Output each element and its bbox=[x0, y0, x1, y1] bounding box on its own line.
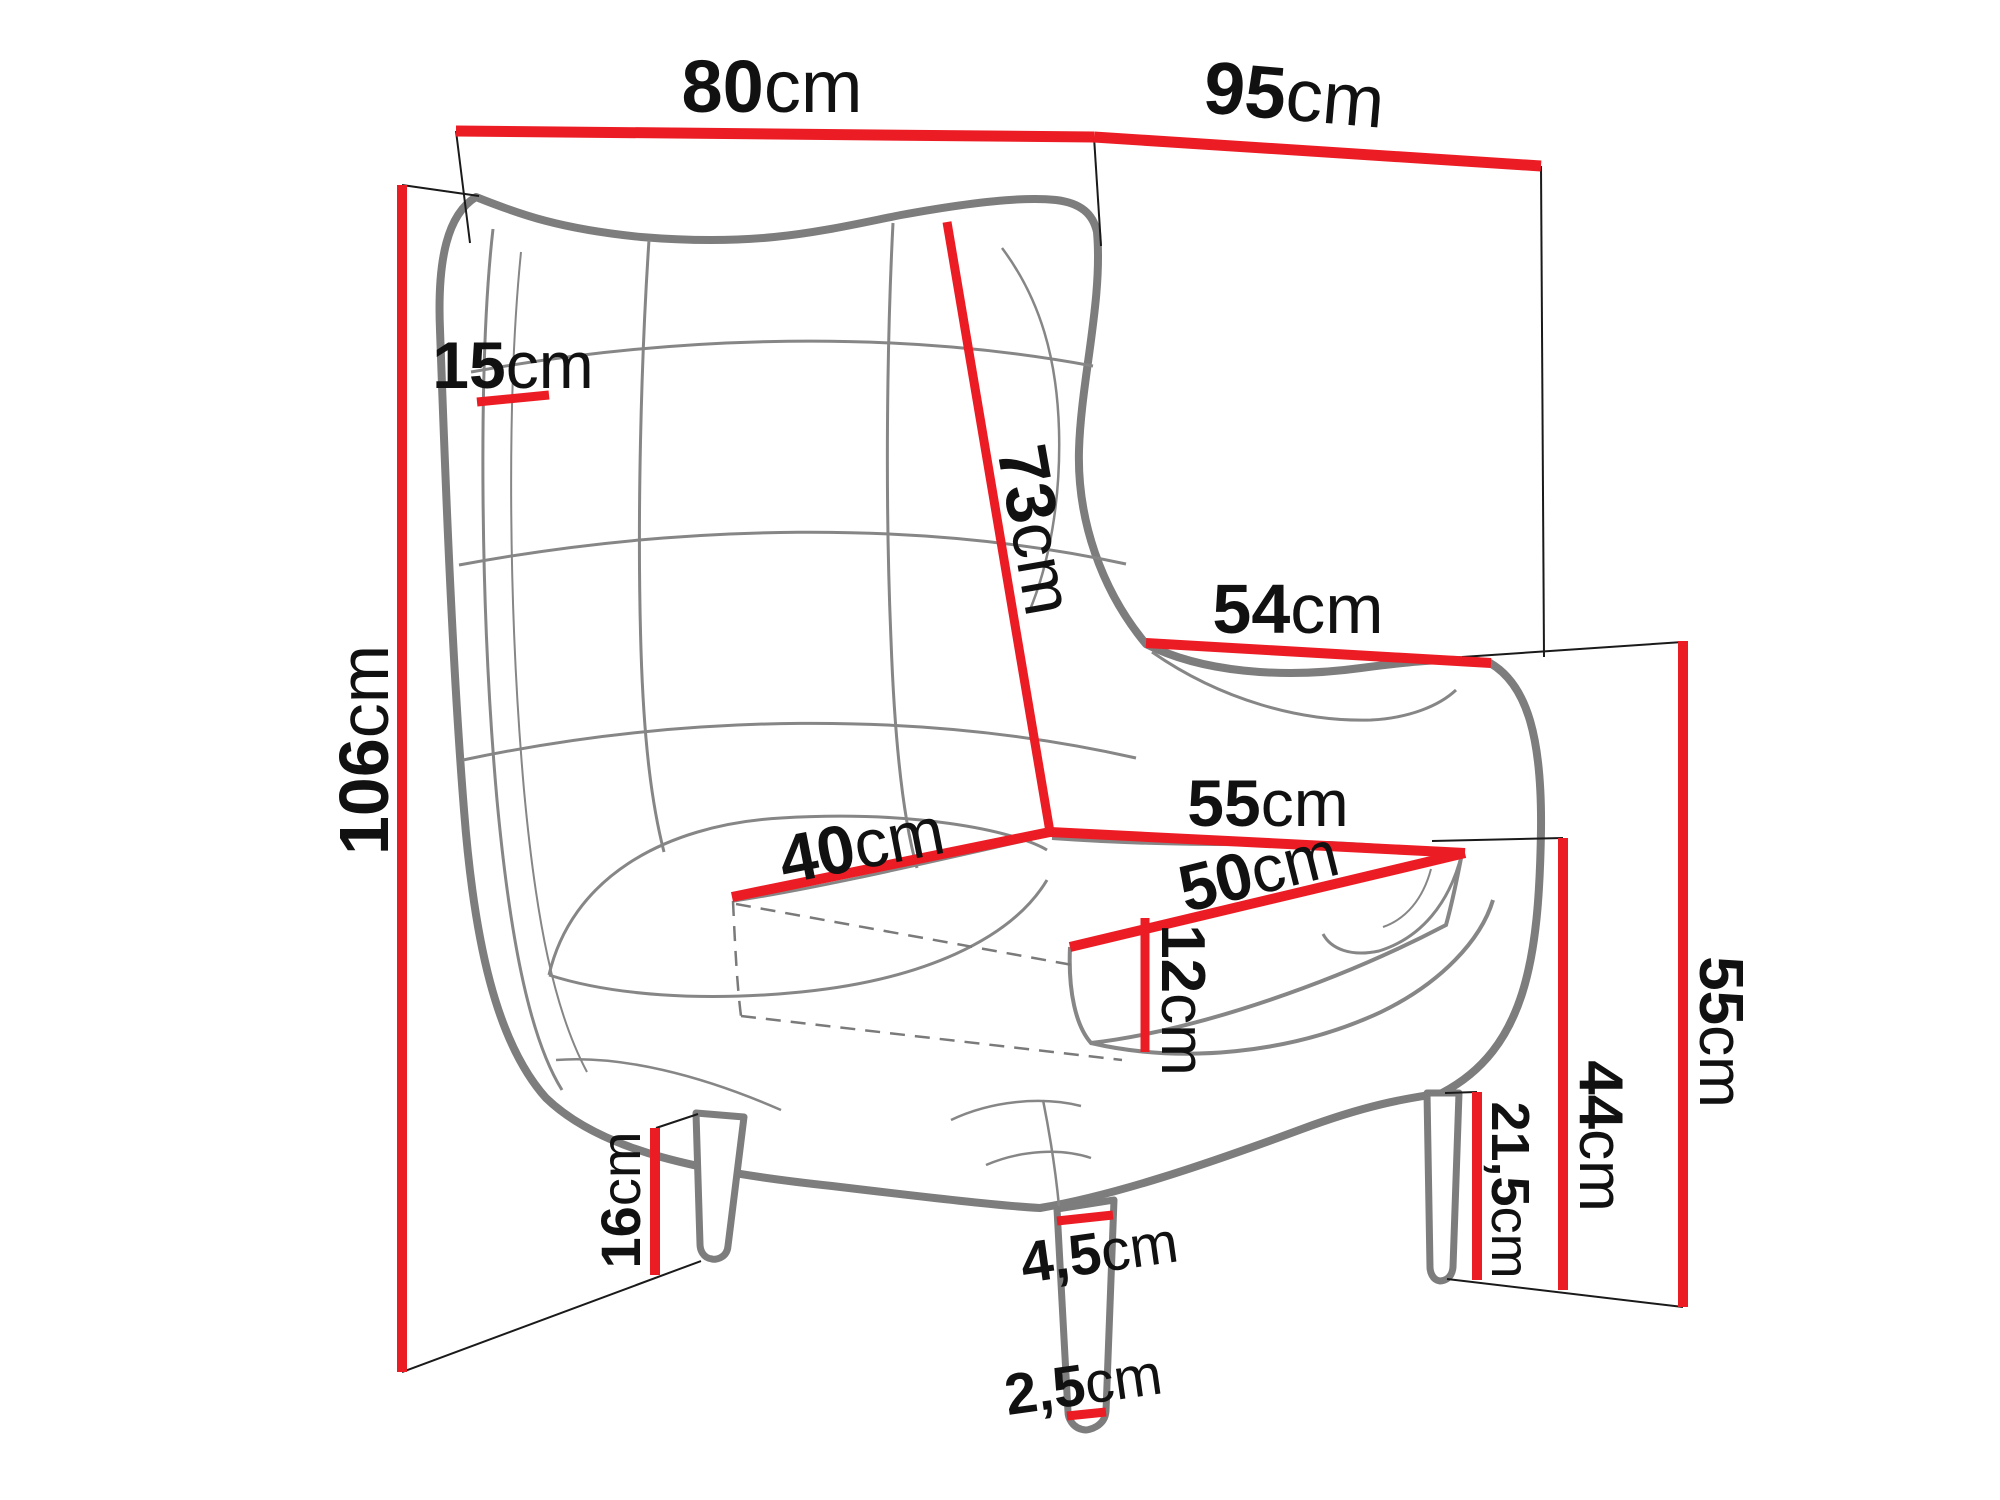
rear-right-leg-shape bbox=[1427, 1093, 1459, 1281]
label-overall-height: 106cm bbox=[325, 645, 403, 855]
ext-overall-height-top bbox=[402, 185, 479, 196]
diagram-canvas: 80cm 95cm 106cm 15cm 73cm 54cm 40cm 55cm… bbox=[0, 0, 2000, 1500]
armchair-dimension-diagram: 80cm 95cm 106cm 15cm 73cm 54cm 40cm 55cm… bbox=[0, 0, 2000, 1500]
ext-armrest-height-top bbox=[1462, 642, 1683, 657]
label-rear-leg-height: 21,5cm bbox=[1480, 1101, 1540, 1278]
label-leg-top-width: 4,5cm bbox=[1017, 1210, 1182, 1296]
label-cushion-thickness: 12cm bbox=[1148, 924, 1217, 1076]
front-left-leg-shape bbox=[696, 1113, 744, 1259]
label-seat-height: 44cm bbox=[1566, 1060, 1635, 1212]
label-armrest-length: 54cm bbox=[1212, 570, 1383, 648]
label-overall-depth: 95cm bbox=[1200, 45, 1388, 143]
dim-line-overall-depth bbox=[1094, 137, 1541, 166]
chair-body-outline bbox=[440, 197, 1542, 1208]
ext-floor-left bbox=[402, 1261, 701, 1372]
ext-overall-depth-right bbox=[1541, 166, 1544, 657]
label-front-leg-height: 16cm bbox=[589, 1132, 652, 1269]
dim-line-overall-width bbox=[456, 131, 1094, 137]
label-armrest-height: 55cm bbox=[1686, 956, 1755, 1108]
label-overall-width: 80cm bbox=[682, 45, 863, 128]
label-wing-thickness: 15cm bbox=[432, 328, 593, 402]
label-leg-bottom-width: 2,5cm bbox=[1001, 1342, 1166, 1428]
